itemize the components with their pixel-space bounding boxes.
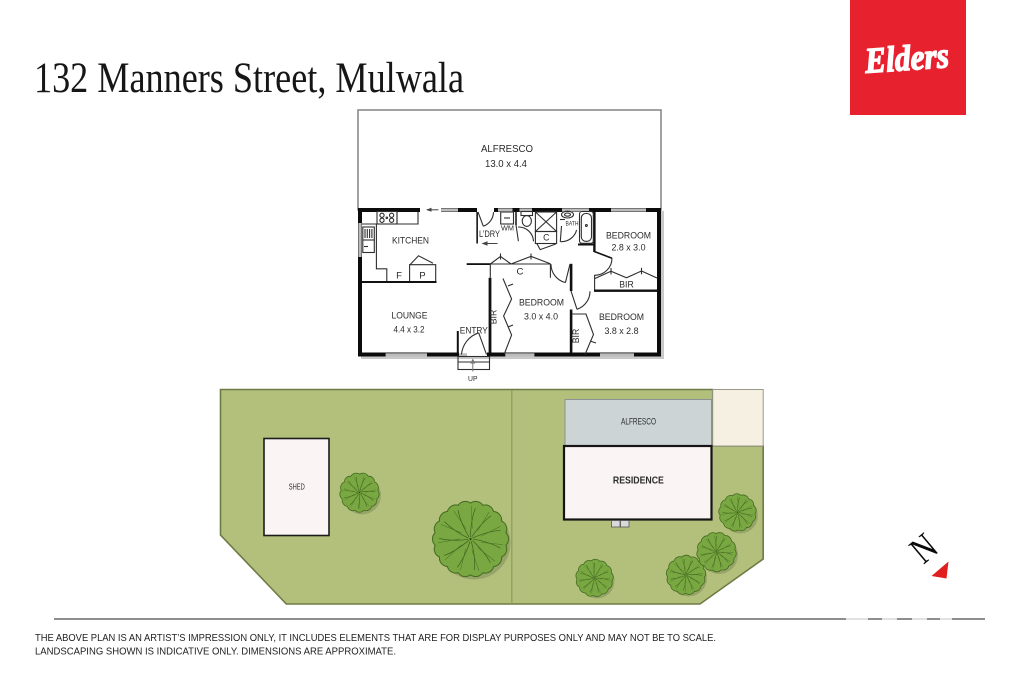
svg-text:BIR: BIR [619,279,634,290]
svg-text:BEDROOM: BEDROOM [606,231,651,242]
svg-text:Elders: Elders [863,35,950,81]
svg-text:L’DRY: L’DRY [479,229,500,239]
svg-text:KITCHEN: KITCHEN [392,236,429,247]
svg-text:N: N [902,526,946,572]
svg-text:THE ABOVE PLAN IS AN ARTIST’S: THE ABOVE PLAN IS AN ARTIST’S IMPRESSION… [35,633,716,644]
svg-text:P: P [419,271,425,282]
svg-text:3.8 x 2.8: 3.8 x 2.8 [605,325,639,336]
svg-text:LANDSCAPING SHOWN IS INDICATIV: LANDSCAPING SHOWN IS INDICATIVE ONLY. DI… [35,647,396,658]
svg-text:2.8 x 3.0: 2.8 x 3.0 [612,242,646,253]
svg-text:3.0 x 4.0: 3.0 x 4.0 [524,311,558,322]
svg-text:13.0 x 4.4: 13.0 x 4.4 [485,159,527,170]
svg-text:ALFRESCO: ALFRESCO [621,417,656,427]
svg-text:BIR: BIR [487,310,498,325]
svg-text:SHED: SHED [289,483,305,492]
svg-text:132 Manners Street, Mulwala: 132 Manners Street, Mulwala [34,55,464,102]
svg-text:BEDROOM: BEDROOM [519,298,564,309]
svg-text:RESIDENCE: RESIDENCE [613,476,664,487]
svg-text:4.4 x 3.2: 4.4 x 3.2 [394,324,425,335]
svg-text:BIR: BIR [570,329,581,344]
svg-text:UP: UP [468,376,478,383]
svg-text:WM: WM [501,224,514,233]
svg-text:LOUNGE: LOUNGE [392,311,428,322]
svg-text:ALFRESCO: ALFRESCO [481,144,533,155]
svg-text:BATH: BATH [566,221,579,228]
svg-text:C: C [543,232,550,242]
svg-text:F: F [396,271,402,282]
svg-text:C: C [517,267,524,278]
svg-text:BEDROOM: BEDROOM [599,312,644,323]
